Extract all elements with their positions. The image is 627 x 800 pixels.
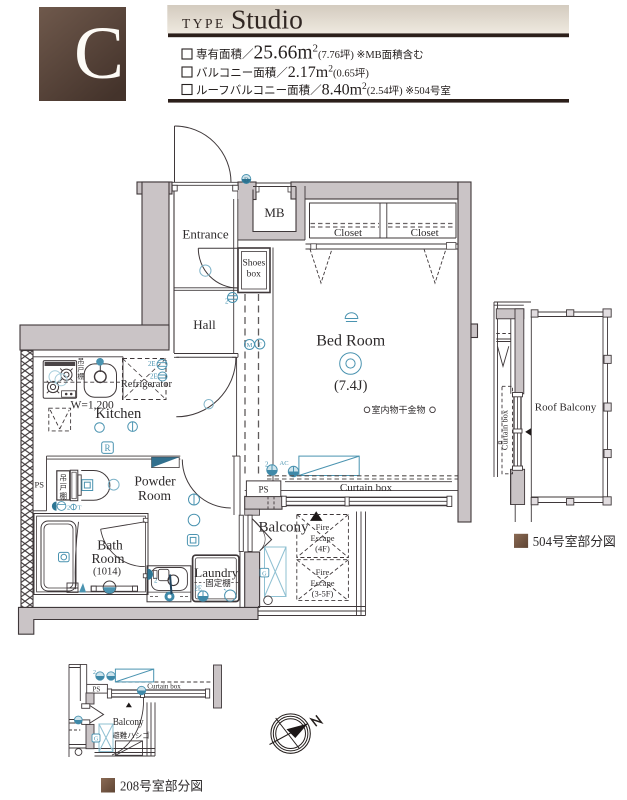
svg-text:(4F): (4F): [315, 544, 330, 554]
svg-text:室内物干金物: 室内物干金物: [371, 404, 425, 415]
svg-text:MB: MB: [264, 205, 285, 220]
svg-text:Escape: Escape: [310, 533, 334, 543]
svg-text:吊: 吊: [78, 358, 85, 366]
svg-text:Curtain box: Curtain box: [147, 682, 181, 691]
svg-text:2E: 2E: [195, 586, 203, 593]
svg-text:2: 2: [93, 670, 96, 676]
svg-text:Closet: Closet: [411, 227, 439, 239]
svg-text:Roof Balcony: Roof Balcony: [535, 402, 597, 414]
svg-text:Room: Room: [91, 551, 125, 566]
svg-text:Shoes: Shoes: [242, 259, 265, 269]
svg-text:Closet: Closet: [334, 227, 362, 239]
svg-text:(3-5F): (3-5F): [312, 589, 334, 599]
svg-text:D: D: [244, 177, 249, 184]
svg-text:戸: 戸: [59, 483, 67, 492]
svg-text:Curtain box: Curtain box: [500, 409, 510, 450]
svg-text:Bed Room: Bed Room: [316, 333, 385, 350]
svg-text:T: T: [78, 505, 82, 512]
svg-text:TYPE: TYPE: [182, 16, 226, 31]
svg-text:Room: Room: [138, 488, 172, 503]
svg-text:2E: 2E: [148, 361, 156, 368]
svg-text:固定棚: 固定棚: [205, 578, 231, 588]
svg-text:2: 2: [67, 505, 70, 512]
svg-text:R: R: [104, 443, 110, 453]
svg-text:M: M: [247, 342, 253, 349]
svg-text:504号室部分図: 504号室部分図: [533, 533, 616, 549]
svg-text:Kitchen: Kitchen: [95, 406, 142, 422]
svg-text:Hall: Hall: [193, 317, 216, 332]
svg-text:Curtain box: Curtain box: [340, 482, 393, 494]
svg-text:Studio: Studio: [231, 4, 303, 35]
svg-text:Balcony: Balcony: [259, 520, 309, 536]
svg-text:避難ハシゴ: 避難ハシゴ: [112, 730, 150, 740]
svg-text:PS: PS: [258, 485, 268, 495]
svg-text:棚: 棚: [59, 491, 67, 501]
svg-text:AC: AC: [280, 460, 289, 467]
svg-text:Powder: Powder: [134, 474, 176, 489]
svg-text:Fire: Fire: [316, 522, 330, 532]
svg-text:Escape: Escape: [310, 578, 334, 588]
svg-text:Balcony: Balcony: [113, 716, 144, 728]
svg-text:Fire: Fire: [316, 567, 330, 577]
svg-text:G: G: [262, 570, 267, 577]
svg-text:T: T: [258, 342, 262, 349]
svg-text:2: 2: [154, 577, 158, 585]
svg-text:専有面積／25.66m2(7.76坪) ※MB面積含む: 専有面積／25.66m2(7.76坪) ※MB面積含む: [196, 43, 424, 64]
svg-text:戸: 戸: [78, 365, 85, 373]
svg-text:PS: PS: [35, 480, 45, 490]
svg-text:Entrance: Entrance: [182, 227, 228, 242]
svg-text:box: box: [247, 270, 262, 280]
svg-text:2: 2: [225, 298, 229, 306]
svg-text:バルコニー面積／2.17m2(0.65坪): バルコニー面積／2.17m2(0.65坪): [196, 64, 369, 81]
svg-text:ルーフバルコニー面積／8.40m2(2.54坪) ※504号: ルーフバルコニー面積／8.40m2(2.54坪) ※504号室: [196, 81, 451, 98]
svg-text:G: G: [94, 737, 99, 743]
svg-text:C: C: [74, 12, 124, 95]
svg-text:棚: 棚: [78, 372, 85, 381]
svg-text:PS: PS: [93, 686, 101, 694]
svg-text:(1014): (1014): [93, 567, 121, 578]
svg-text:2E: 2E: [150, 374, 158, 381]
svg-text:(7.4J): (7.4J): [334, 378, 368, 394]
svg-text:208号室部分図: 208号室部分図: [120, 778, 203, 794]
svg-text:吊: 吊: [59, 474, 67, 483]
svg-text:2: 2: [265, 461, 269, 469]
